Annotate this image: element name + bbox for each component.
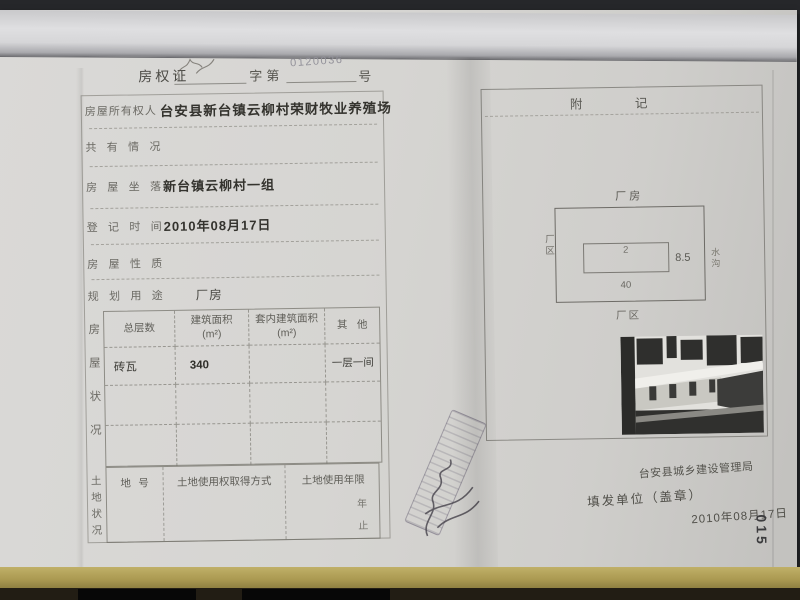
col-header-build-area: 建筑面积 (m²) [175, 310, 250, 347]
cell-empty [105, 385, 177, 426]
field-label-owner: 房屋所有权人 [85, 102, 157, 119]
diagram-bottom-label: 厂区 [616, 308, 641, 323]
field-value-location: 新台镇云柳村一组 [163, 174, 275, 195]
col-header-parcel-no: 地号 [106, 467, 164, 542]
certificate-number: 0120036 [290, 54, 344, 70]
desk-gap [242, 589, 390, 600]
field-label-house-nature: 房屋性质 [87, 255, 163, 272]
desk-gap [78, 589, 196, 600]
issue-unit-label: 填发单位（盖章） [586, 484, 703, 511]
diagram-top-label: 厂房 [615, 187, 643, 203]
cell-other: 一层一间 [326, 344, 381, 383]
table-edge-strip [0, 567, 800, 589]
col-header-land-method: 土地使用权取得方式 [163, 465, 286, 541]
col-header-inner-area: 套内建筑面积 (m²) [249, 308, 326, 345]
handwritten-prefix-scribble [172, 53, 218, 82]
diagram-left-label: 厂区 [541, 234, 555, 257]
cell-empty [106, 425, 178, 467]
building-photo [620, 335, 764, 435]
cell-area: 340 [176, 346, 251, 385]
cell-empty [326, 382, 381, 423]
field-value-owner: 台安县新台镇云柳村荣财牧业养殖场 [160, 96, 392, 120]
col-header-floors: 总层数 [104, 311, 176, 348]
certificate-paper: 房权证 字第 0120036 号 房屋所有权人 台安县新台镇云柳村荣财牧业养殖场… [0, 10, 797, 567]
col-header-other: 其他 [325, 308, 380, 345]
cell-inner [250, 344, 327, 383]
certificate-photo-scene: 房权证 字第 0120036 号 房屋所有权人 台安县新台镇云柳村荣财牧业养殖场… [0, 0, 800, 600]
field-label-location: 房屋坐落 [86, 178, 162, 195]
field-label-coownership: 共有情况 [85, 138, 161, 155]
issuing-authority: 台安县城乡建设管理局 [638, 458, 754, 482]
cell-empty [177, 424, 252, 466]
land-term-year-mark: 年 [357, 495, 367, 510]
side-label-land-status: 土地状况 [89, 475, 105, 541]
center-fold-shadow [446, 57, 498, 570]
cell-empty [251, 422, 328, 464]
certificate-hao-label: 号 [358, 66, 371, 85]
field-label-planned-use: 规划用途 [88, 287, 164, 304]
diagram-inner-mark: 2 [623, 245, 628, 256]
house-status-table: 总层数 建筑面积 (m²) 套内建筑面积 (m²) 其他 砖瓦 340 一层一间 [103, 307, 382, 467]
side-label-house-status: 房屋状况 [85, 323, 103, 457]
field-value-reg-date: 2010年08月17日 [163, 214, 271, 235]
field-value-planned-use: 厂房 [196, 284, 223, 303]
diagram-width-value: 40 [621, 280, 632, 291]
diagram-height-value: 8.5 [675, 252, 690, 264]
title-underline-1 [174, 83, 246, 85]
cell-empty [250, 382, 327, 423]
side-page-code: 015 [753, 514, 770, 547]
issue-date: 2010年08月17日 [691, 505, 789, 528]
field-label-reg-date: 登记时间 [87, 218, 163, 235]
cell-empty [327, 422, 382, 464]
land-term-end-mark: 止 [358, 517, 368, 532]
title-underline-2 [286, 81, 356, 83]
certificate-zi-di-label: 字第 [249, 65, 283, 85]
land-status-table: 地号 土地使用权取得方式 土地使用年限 [105, 463, 380, 543]
cell-structure: 砖瓦 [105, 347, 177, 386]
cell-empty [176, 384, 251, 425]
document-content: 房权证 字第 0120036 号 房屋所有权人 台安县新台镇云柳村荣财牧业养殖场… [0, 4, 800, 600]
diagram-right-label: 水沟 [709, 247, 722, 269]
